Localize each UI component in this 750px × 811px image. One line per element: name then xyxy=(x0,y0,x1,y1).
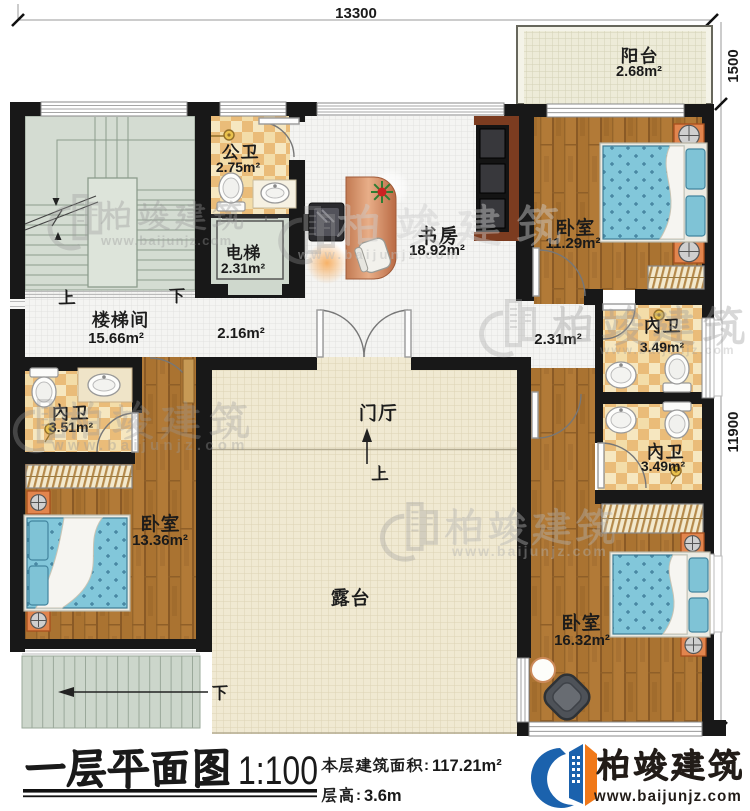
svg-text:www.baijunjz.com: www.baijunjz.com xyxy=(451,543,608,559)
svg-text:2.75m²: 2.75m² xyxy=(216,159,261,175)
svg-text:1500: 1500 xyxy=(725,49,742,82)
svg-text:2.68m²: 2.68m² xyxy=(616,64,662,80)
svg-text:www.baijunjz.com: www.baijunjz.com xyxy=(51,437,249,454)
svg-text:13300: 13300 xyxy=(335,5,377,22)
svg-text:3.6m: 3.6m xyxy=(364,787,402,805)
svg-text:2.16m²: 2.16m² xyxy=(217,325,265,342)
svg-text:1:100: 1:100 xyxy=(238,749,318,793)
svg-text:15.66m²: 15.66m² xyxy=(88,330,144,347)
svg-text:3.49m²: 3.49m² xyxy=(641,458,686,474)
svg-text:16.32m²: 16.32m² xyxy=(554,632,610,649)
svg-text:www.baijunjz.com: www.baijunjz.com xyxy=(297,247,461,262)
svg-text:www.baijunjz.com: www.baijunjz.com xyxy=(100,233,232,248)
svg-text::: : xyxy=(424,757,429,774)
svg-text:117.21m²: 117.21m² xyxy=(432,757,502,775)
svg-text:2.31m²: 2.31m² xyxy=(221,260,266,276)
svg-text:www.baijunjz.com: www.baijunjz.com xyxy=(599,343,736,357)
svg-text::: : xyxy=(356,787,361,804)
svg-text:13.36m²: 13.36m² xyxy=(132,532,188,549)
svg-text:11900: 11900 xyxy=(725,412,742,453)
svg-text:www.baijunjz.com: www.baijunjz.com xyxy=(593,788,742,805)
